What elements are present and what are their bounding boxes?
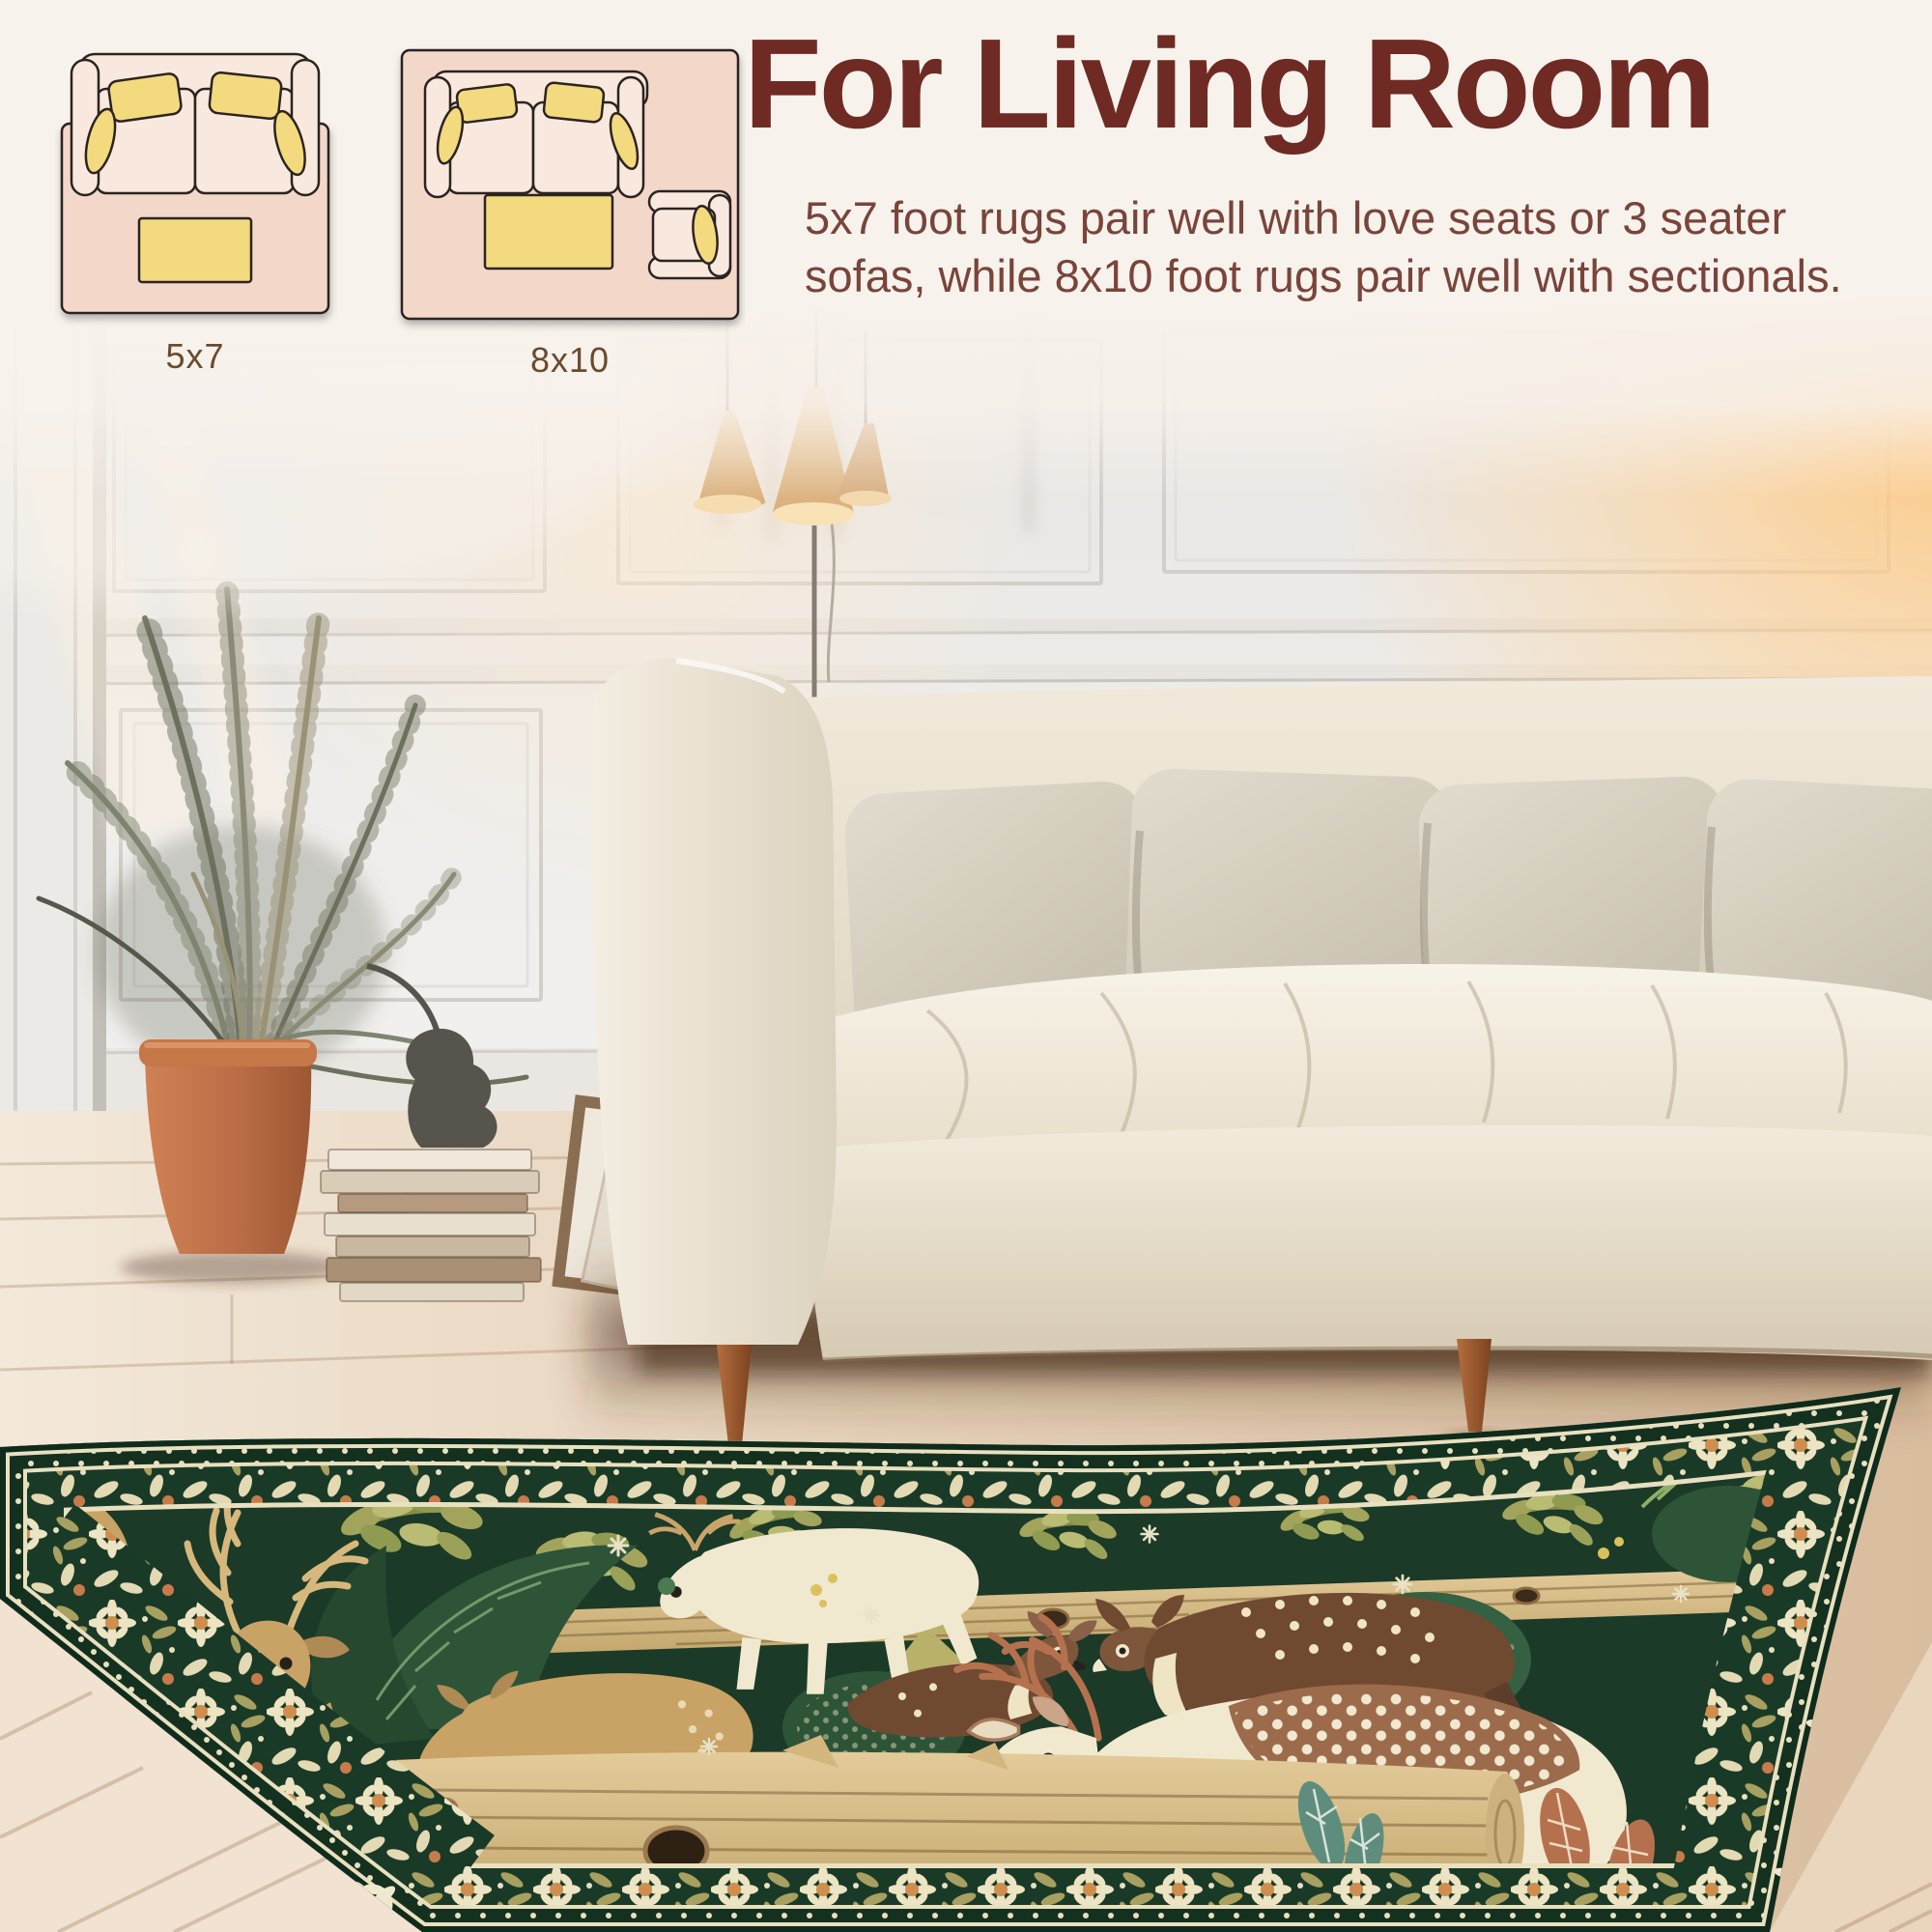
rug-size-diagram-5x7: 5x7 xyxy=(50,27,340,377)
rug-size-label: 8x10 xyxy=(394,340,746,381)
size-guide-header: 5x7 xyxy=(0,0,1932,386)
sofa-base xyxy=(808,1125,1932,1360)
page-description: 5x7 foot rugs pair well with love seats … xyxy=(805,189,1842,305)
page-title: For Living Room xyxy=(744,17,1714,152)
description-line-1: 5x7 foot rugs pair well with love seats … xyxy=(805,192,1786,243)
sofa-arm xyxy=(592,659,837,1345)
description-line-2: sofas, while 8x10 foot rugs pair well wi… xyxy=(805,250,1842,301)
diagram-8x10-art xyxy=(394,27,746,332)
living-room-photo xyxy=(0,290,1932,1932)
rug-size-diagram-8x10: 8x10 xyxy=(394,27,746,381)
armchair-top-view xyxy=(649,191,730,278)
sofa-top-view xyxy=(425,71,647,197)
diagram-5x7-art xyxy=(50,27,340,328)
rug-size-label: 5x7 xyxy=(50,336,340,377)
product-infographic: 5x7 xyxy=(0,0,1932,1932)
coffee-table xyxy=(485,195,612,269)
coffee-table xyxy=(139,218,251,282)
sofa-top-view xyxy=(71,54,319,195)
